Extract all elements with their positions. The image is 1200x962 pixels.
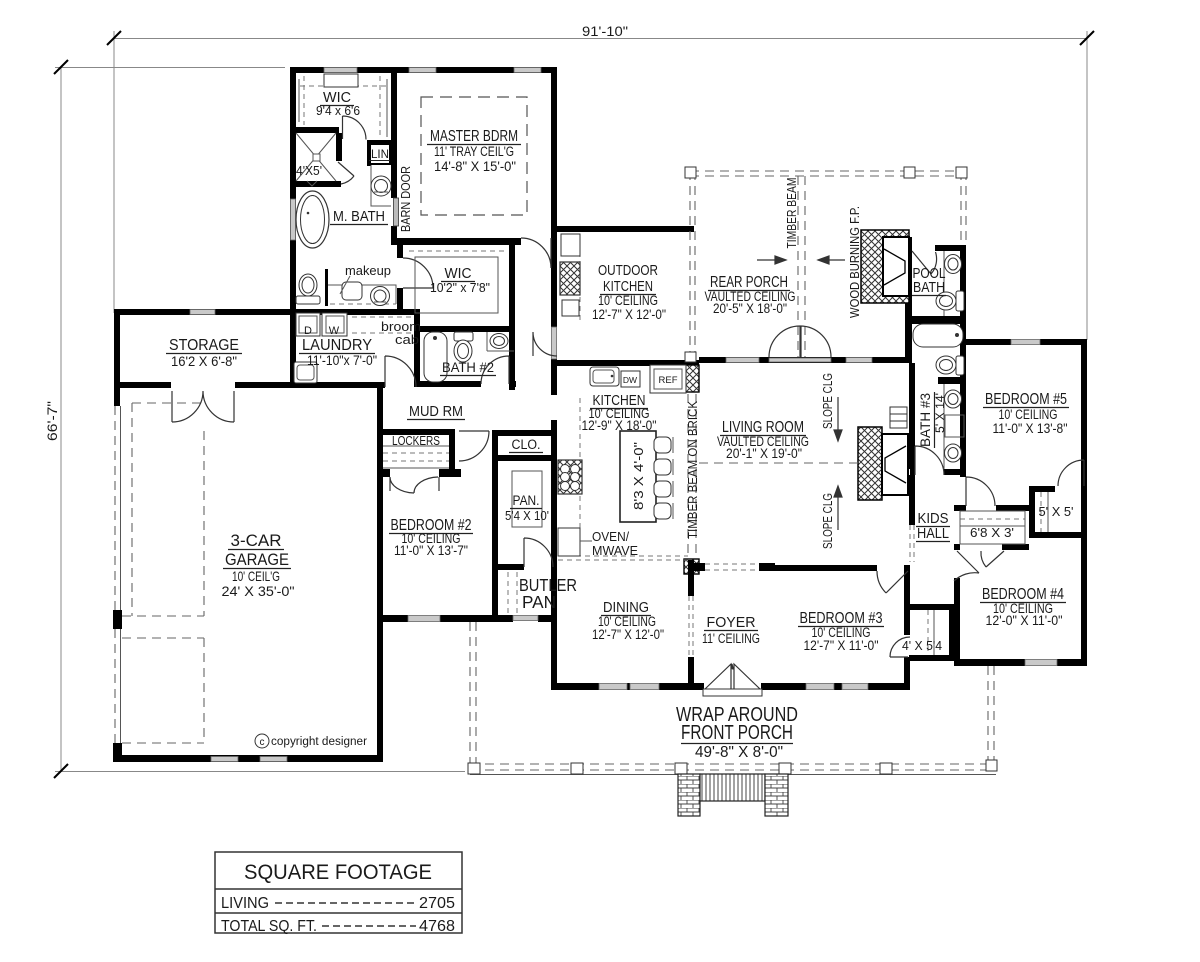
svg-text:LIN: LIN — [371, 149, 389, 161]
svg-text:SLOPE CLG: SLOPE CLG — [820, 373, 835, 429]
svg-text:11' CEILING: 11' CEILING — [702, 631, 760, 646]
svg-text:SLOPE CLG: SLOPE CLG — [820, 493, 835, 549]
svg-text:11'-0" X 13'-8": 11'-0" X 13'-8" — [993, 421, 1068, 436]
svg-text:GARAGE: GARAGE — [225, 550, 289, 569]
svg-text:20'-5" X 18'-0": 20'-5" X 18'-0" — [713, 301, 787, 316]
svg-text:DW: DW — [623, 375, 637, 385]
svg-text:OVEN/: OVEN/ — [592, 530, 629, 544]
svg-text:3-CAR: 3-CAR — [231, 531, 282, 550]
svg-text:FRONT PORCH: FRONT PORCH — [681, 722, 793, 744]
svg-text:12'-9" X 18'-0": 12'-9" X 18'-0" — [582, 418, 657, 433]
svg-text:MUD RM: MUD RM — [409, 404, 463, 420]
svg-text:FOYER: FOYER — [707, 615, 756, 631]
svg-text:24' X 35'-0": 24' X 35'-0" — [222, 583, 295, 599]
svg-text:BATH: BATH — [913, 280, 945, 296]
svg-text:cab: cab — [395, 333, 419, 347]
svg-text:10'2" x 7'8": 10'2" x 7'8" — [430, 281, 490, 295]
svg-text:MASTER BDRM: MASTER BDRM — [430, 128, 518, 145]
svg-text:PAN.: PAN. — [513, 493, 540, 508]
svg-text:4768: 4768 — [419, 918, 455, 935]
svg-text:BATH #3: BATH #3 — [918, 393, 933, 447]
svg-text:makeup: makeup — [345, 264, 391, 278]
svg-text:c: c — [260, 737, 265, 748]
svg-text:10' CEILING: 10' CEILING — [999, 407, 1058, 422]
svg-text:BATH #2: BATH #2 — [442, 359, 494, 375]
svg-text:6'8 X 3': 6'8 X 3' — [970, 526, 1014, 540]
svg-text:11'-10"x 7'-0": 11'-10"x 7'-0" — [307, 353, 377, 368]
svg-text:CLO.: CLO. — [512, 437, 541, 452]
svg-text:2705: 2705 — [419, 895, 455, 912]
svg-text:16'2 X 6'-8": 16'2 X 6'-8" — [171, 353, 237, 369]
svg-text:PAN: PAN — [522, 592, 556, 612]
svg-text:66'-7": 66'-7" — [44, 401, 60, 441]
svg-text:TOTAL SQ. FT.: TOTAL SQ. FT. — [221, 918, 317, 935]
svg-text:D: D — [304, 325, 312, 337]
svg-text:11' TRAY CEIL'G: 11' TRAY CEIL'G — [434, 144, 514, 159]
svg-text:12'-0" X 11'-0": 12'-0" X 11'-0" — [986, 613, 1063, 628]
svg-text:91'-10": 91'-10" — [582, 23, 628, 39]
svg-text:SQUARE FOOTAGE: SQUARE FOOTAGE — [244, 861, 432, 884]
svg-text:4'X5': 4'X5' — [296, 164, 322, 178]
svg-text:STORAGE: STORAGE — [169, 337, 239, 354]
svg-text:9'4 x 6'6: 9'4 x 6'6 — [316, 104, 360, 118]
svg-text:TIMBER BEAM: TIMBER BEAM — [785, 178, 799, 249]
svg-text:12'-7" X 12'-0": 12'-7" X 12'-0" — [592, 627, 664, 642]
svg-text:W: W — [329, 325, 340, 337]
svg-text:MWAVE: MWAVE — [592, 544, 638, 558]
svg-text:49'-8" X 8'-0": 49'-8" X 8'-0" — [695, 744, 783, 761]
svg-text:TIMBER BEAM ON BRICK: TIMBER BEAM ON BRICK — [686, 400, 700, 539]
svg-text:10' CEILING: 10' CEILING — [598, 293, 658, 308]
svg-text:OUTDOOR: OUTDOOR — [598, 262, 658, 279]
svg-text:5'4 X 10': 5'4 X 10' — [505, 509, 549, 523]
svg-text:HALL: HALL — [917, 526, 949, 542]
svg-text:LOCKERS: LOCKERS — [392, 433, 440, 448]
svg-text:14'-8" X 15'-0": 14'-8" X 15'-0" — [434, 159, 516, 174]
svg-text:12'-7" X 11'-0": 12'-7" X 11'-0" — [804, 638, 879, 653]
svg-text:broom: broom — [381, 320, 421, 334]
svg-text:WIC: WIC — [445, 265, 472, 282]
svg-text:12'-7" X 12'-0": 12'-7" X 12'-0" — [592, 307, 666, 322]
svg-text:M. BATH: M. BATH — [333, 208, 385, 225]
svg-text:copyright designer: copyright designer — [271, 736, 367, 748]
svg-text:WOOD BURNING F.P.: WOOD BURNING F.P. — [848, 206, 862, 318]
svg-text:10' CEIL'G: 10' CEIL'G — [232, 568, 280, 584]
svg-text:8'3 X 4'-0": 8'3 X 4'-0" — [632, 442, 646, 510]
svg-text:LAUNDRY: LAUNDRY — [302, 337, 372, 354]
svg-text:REF: REF — [659, 375, 678, 386]
svg-text:5' X 14': 5' X 14' — [935, 393, 947, 433]
svg-text:KIDS: KIDS — [918, 511, 949, 527]
svg-text:5' X 5': 5' X 5' — [1039, 505, 1074, 519]
svg-text:LIVING: LIVING — [221, 895, 269, 912]
svg-text:BEDROOM #5: BEDROOM #5 — [985, 391, 1067, 408]
svg-text:4' X 5'4: 4' X 5'4 — [902, 639, 942, 653]
svg-text:11'-0" X 13'-7": 11'-0" X 13'-7" — [394, 543, 468, 558]
svg-text:20'-1" X 19'-0": 20'-1" X 19'-0" — [726, 446, 802, 461]
svg-text:BARN DOOR: BARN DOOR — [399, 166, 413, 232]
